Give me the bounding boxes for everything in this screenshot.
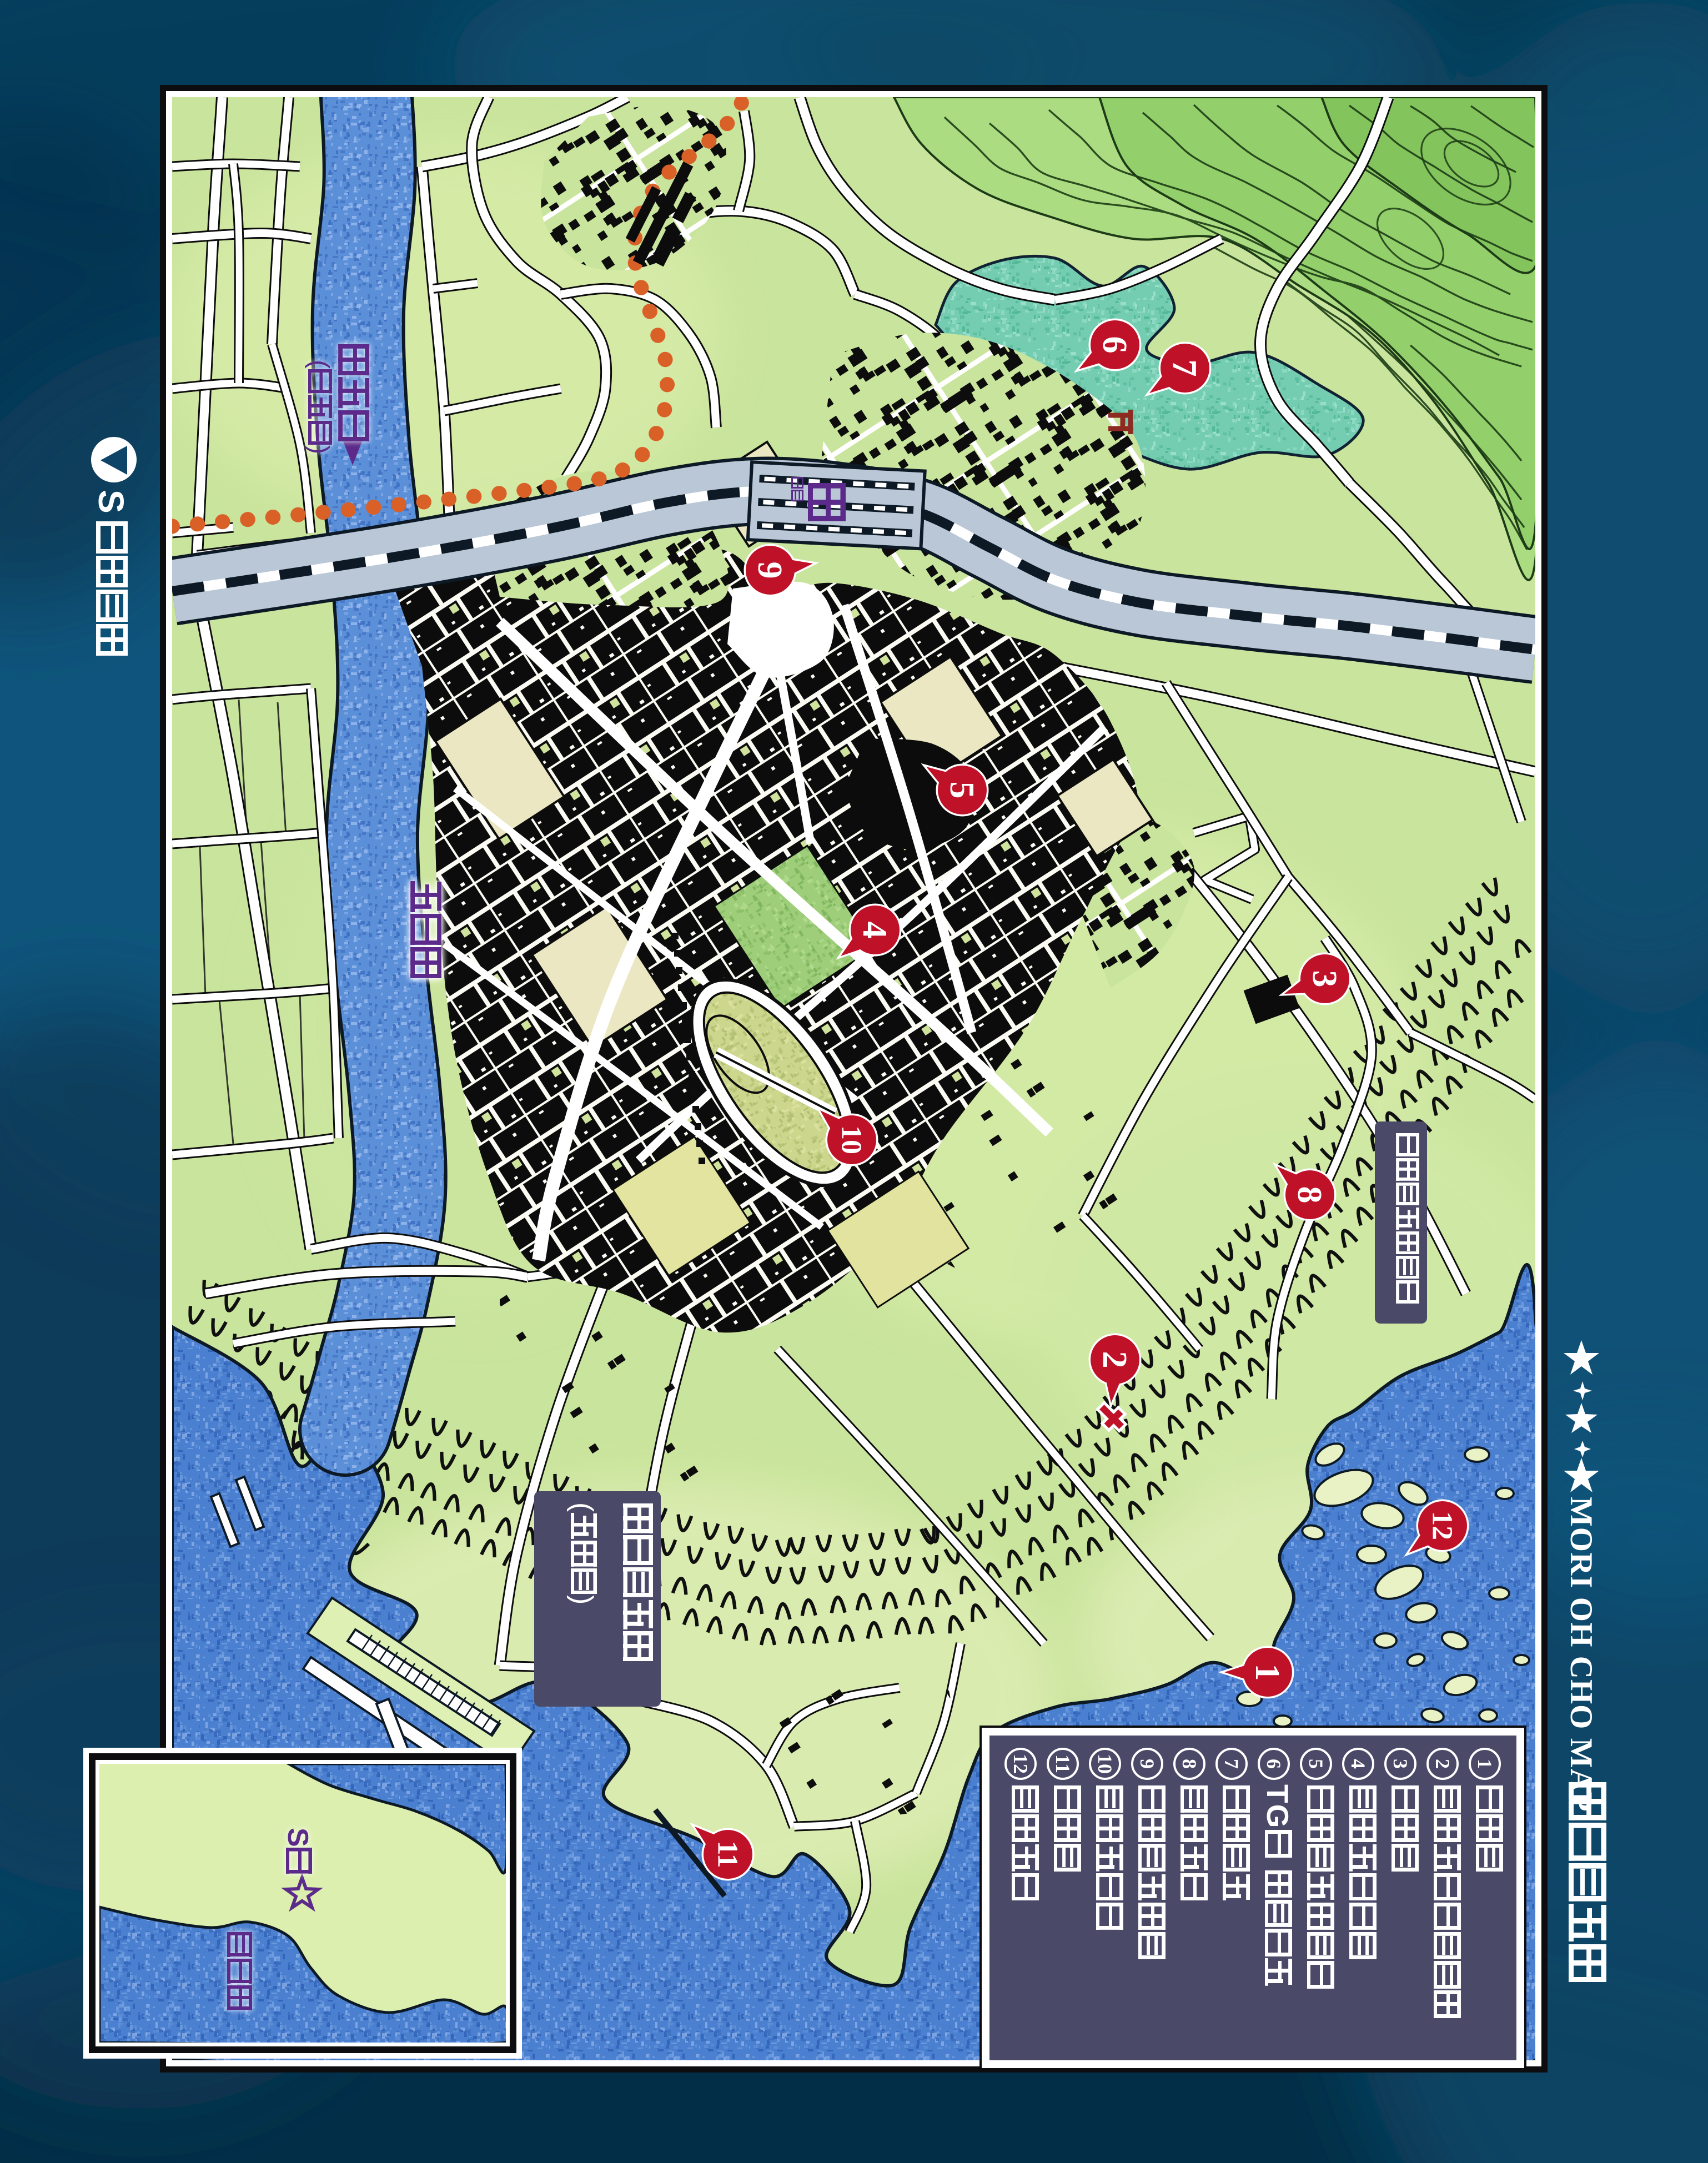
svg-text:2: 2 xyxy=(1096,1351,1133,1369)
svg-text:1: 1 xyxy=(1248,1664,1286,1681)
svg-text:6: 6 xyxy=(1096,336,1133,354)
svg-text:3: 3 xyxy=(1305,970,1343,988)
svg-text:5: 5 xyxy=(943,782,981,799)
svg-text:7: 7 xyxy=(1166,360,1203,377)
svg-text:4: 4 xyxy=(856,922,893,939)
svg-text:8: 8 xyxy=(1290,1186,1328,1204)
svg-text:11: 11 xyxy=(711,1840,743,1868)
svg-text:10: 10 xyxy=(835,1125,867,1154)
svg-text:9: 9 xyxy=(751,562,788,579)
svg-text:12: 12 xyxy=(1426,1511,1458,1540)
